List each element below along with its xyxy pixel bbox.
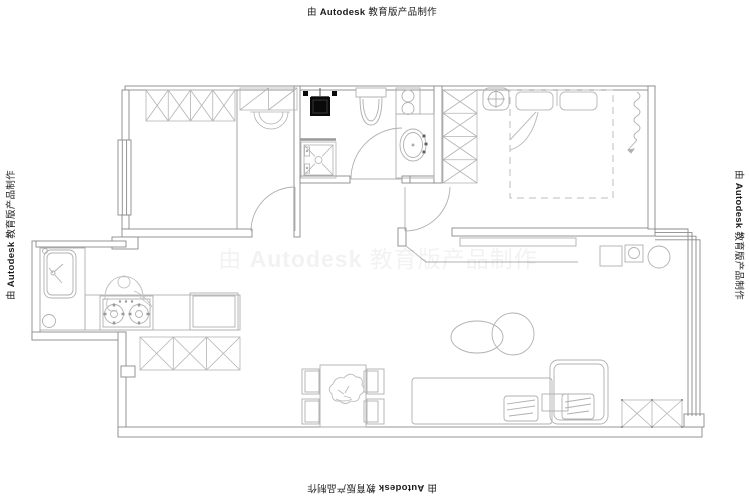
pillow <box>560 92 597 110</box>
arrow-icon <box>628 149 634 153</box>
sofa-cushion <box>504 396 538 421</box>
wall-bath-south-a <box>300 176 350 183</box>
base-cabinet-hatched <box>140 337 240 370</box>
pipe-circle-icon <box>629 248 640 259</box>
corner-sofa <box>412 360 608 424</box>
coffee-tables <box>451 313 534 355</box>
wall-corner-stub <box>684 414 704 427</box>
utility-boxes <box>600 245 670 268</box>
wall-left-upper <box>122 90 129 140</box>
faucet-dot-icon <box>422 150 425 153</box>
sofa-cushion <box>562 394 594 419</box>
dining-chair <box>302 399 319 424</box>
wall-kitchen-south <box>32 332 126 340</box>
blanket-fold <box>510 112 538 150</box>
wall-bedroom2-south <box>452 228 655 236</box>
wardrobe-bedroom-2 <box>443 90 477 183</box>
corner-cabinet-hatched <box>621 399 683 428</box>
wall-dining-west <box>118 332 126 435</box>
round-coffee-table <box>492 313 534 355</box>
wall-bottom <box>118 427 702 437</box>
kitchen-sink <box>43 249 77 299</box>
floor-drain <box>43 315 56 328</box>
wall-pier-small <box>121 366 135 377</box>
dining-chair <box>302 369 319 394</box>
bedside-stool <box>483 88 509 110</box>
double-bed <box>510 90 613 198</box>
fridge <box>190 293 238 330</box>
wall-bedroom2-east <box>648 86 655 229</box>
curtain-coil <box>628 92 640 153</box>
wall-bath-south-b <box>410 176 436 183</box>
watermark-bottom: 由 Autodesk 教育版产品制作 <box>307 482 437 496</box>
wall-bath-east <box>434 86 442 183</box>
dining-set <box>302 365 384 427</box>
oval-coffee-table <box>451 321 503 353</box>
round-stool <box>648 246 670 268</box>
dining-table <box>320 365 366 427</box>
faucet-dot-icon <box>424 142 427 145</box>
person-figure <box>105 276 152 311</box>
wall-top <box>125 86 655 90</box>
dining-chair <box>364 399 384 424</box>
wardrobe-bedroom-1 <box>146 90 235 121</box>
door-arc-bedroom-2 <box>405 187 450 231</box>
wall-kitchen-north <box>36 241 126 247</box>
wall-left-lower <box>122 215 129 229</box>
watermark-right: 由 Autodesk 教育版产品制作 <box>733 170 747 300</box>
door-arc-bedroom-1 <box>251 187 295 231</box>
wall-mid-horizontal <box>122 229 252 237</box>
shower-tray <box>300 140 336 179</box>
sink-faucet-icon <box>49 264 63 283</box>
laundry-unit <box>396 88 420 115</box>
wall-kitchen-west <box>32 241 40 340</box>
window-right <box>655 229 700 416</box>
wall-bath-jamb <box>402 176 410 183</box>
toilet <box>356 88 386 125</box>
dressing-table <box>250 112 290 129</box>
watermark-center-faint: 由 Autodesk 教育版产品制作 <box>218 240 538 274</box>
watermark-top: 由 Autodesk 教育版产品制作 <box>307 4 437 18</box>
pillow <box>516 92 553 110</box>
watermark-left: 由 Autodesk 教育版产品制作 <box>3 170 17 300</box>
faucet-dot-icon <box>422 134 425 137</box>
plant-centerpiece <box>329 374 364 403</box>
door-arc-bathroom <box>351 128 402 179</box>
water-heater <box>303 88 337 116</box>
stove-burner <box>129 304 150 325</box>
overhead-shelf <box>240 88 297 110</box>
cabinet-box <box>600 246 622 266</box>
dining-chair <box>364 369 384 394</box>
window-left <box>118 140 131 215</box>
vanity-wash-basin <box>396 114 434 178</box>
